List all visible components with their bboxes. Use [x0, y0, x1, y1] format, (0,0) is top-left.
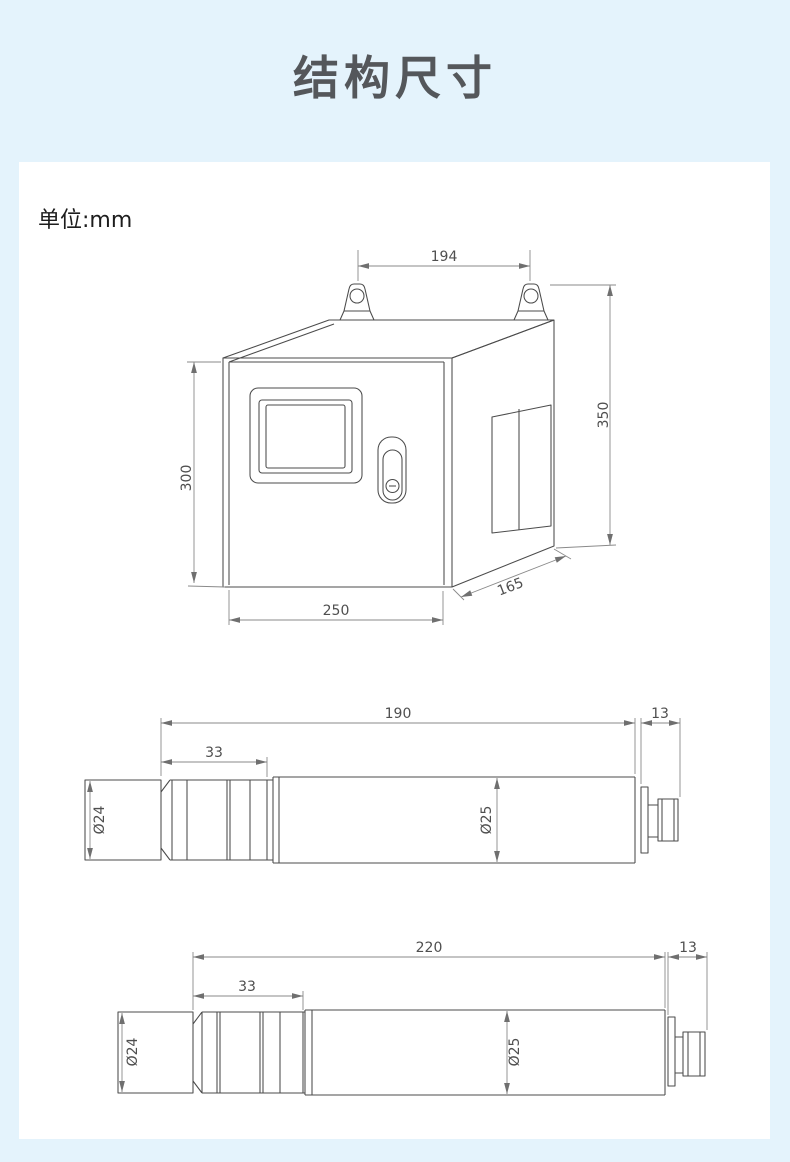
probe-long-step	[668, 1017, 675, 1086]
cabinet-side-face	[452, 320, 554, 587]
probe-short-connector	[658, 799, 678, 841]
page: 结构尺寸 单位:mm	[0, 0, 790, 1162]
dim-probe-long-head-dia-label: Ø24	[125, 1037, 141, 1066]
dim-probe-short-head-label: 33	[205, 745, 223, 761]
probe-short-step	[641, 787, 648, 853]
probe-long-stem	[675, 1037, 683, 1073]
probe-long-chamfer	[193, 1012, 202, 1093]
probe-short-dimension-lines	[90, 718, 680, 862]
dim-probe-long-connector-label: 13	[679, 940, 697, 956]
probe-short-head	[170, 780, 273, 860]
cabinet-outline	[223, 284, 554, 587]
probe-long-connector-facets	[688, 1032, 700, 1076]
probe-long-body	[305, 1010, 665, 1095]
dim-probe-short-body-dia-label: Ø25	[479, 806, 495, 835]
mount-lug-left-hole	[350, 289, 364, 303]
dim-front-width-label: 250	[323, 603, 350, 619]
dim-probe-long-body-dia-label: Ø25	[507, 1038, 523, 1067]
probe-short-connector-facets	[662, 799, 674, 841]
dim-probe-short-connector-label: 13	[651, 706, 669, 722]
display-window-inner	[266, 405, 345, 468]
mount-lug-right-hole	[524, 289, 538, 303]
probe-long-connector	[683, 1032, 705, 1076]
cabinet-dimension-lines	[187, 250, 616, 625]
probe-short-stem	[648, 805, 658, 837]
dim-mount-spacing-label: 194	[431, 249, 458, 265]
dim-probe-long-head-label: 33	[238, 979, 256, 995]
dim-probe-long-length-label: 220	[416, 940, 443, 956]
probe-long-dimension-lines	[122, 952, 707, 1094]
probe-long-head	[202, 1012, 305, 1093]
dim-overall-height-label: 350	[596, 402, 612, 429]
dim-probe-short-head-dia-label: Ø24	[92, 805, 108, 834]
probe-short-outline	[85, 777, 678, 863]
dim-probe-short-length-label: 190	[385, 706, 412, 722]
probe-short-chamfer	[161, 780, 170, 860]
probe-short-body	[273, 777, 635, 863]
dim-front-height-label: 300	[179, 465, 195, 492]
dim-depth-label: 165	[495, 575, 526, 600]
cabinet-lid-rim	[229, 324, 444, 362]
display-window-mid	[259, 400, 352, 473]
probe-long-outline	[118, 1010, 705, 1095]
side-slot	[492, 405, 551, 533]
dimension-drawings: 194 350 300 250 165	[0, 0, 790, 1162]
